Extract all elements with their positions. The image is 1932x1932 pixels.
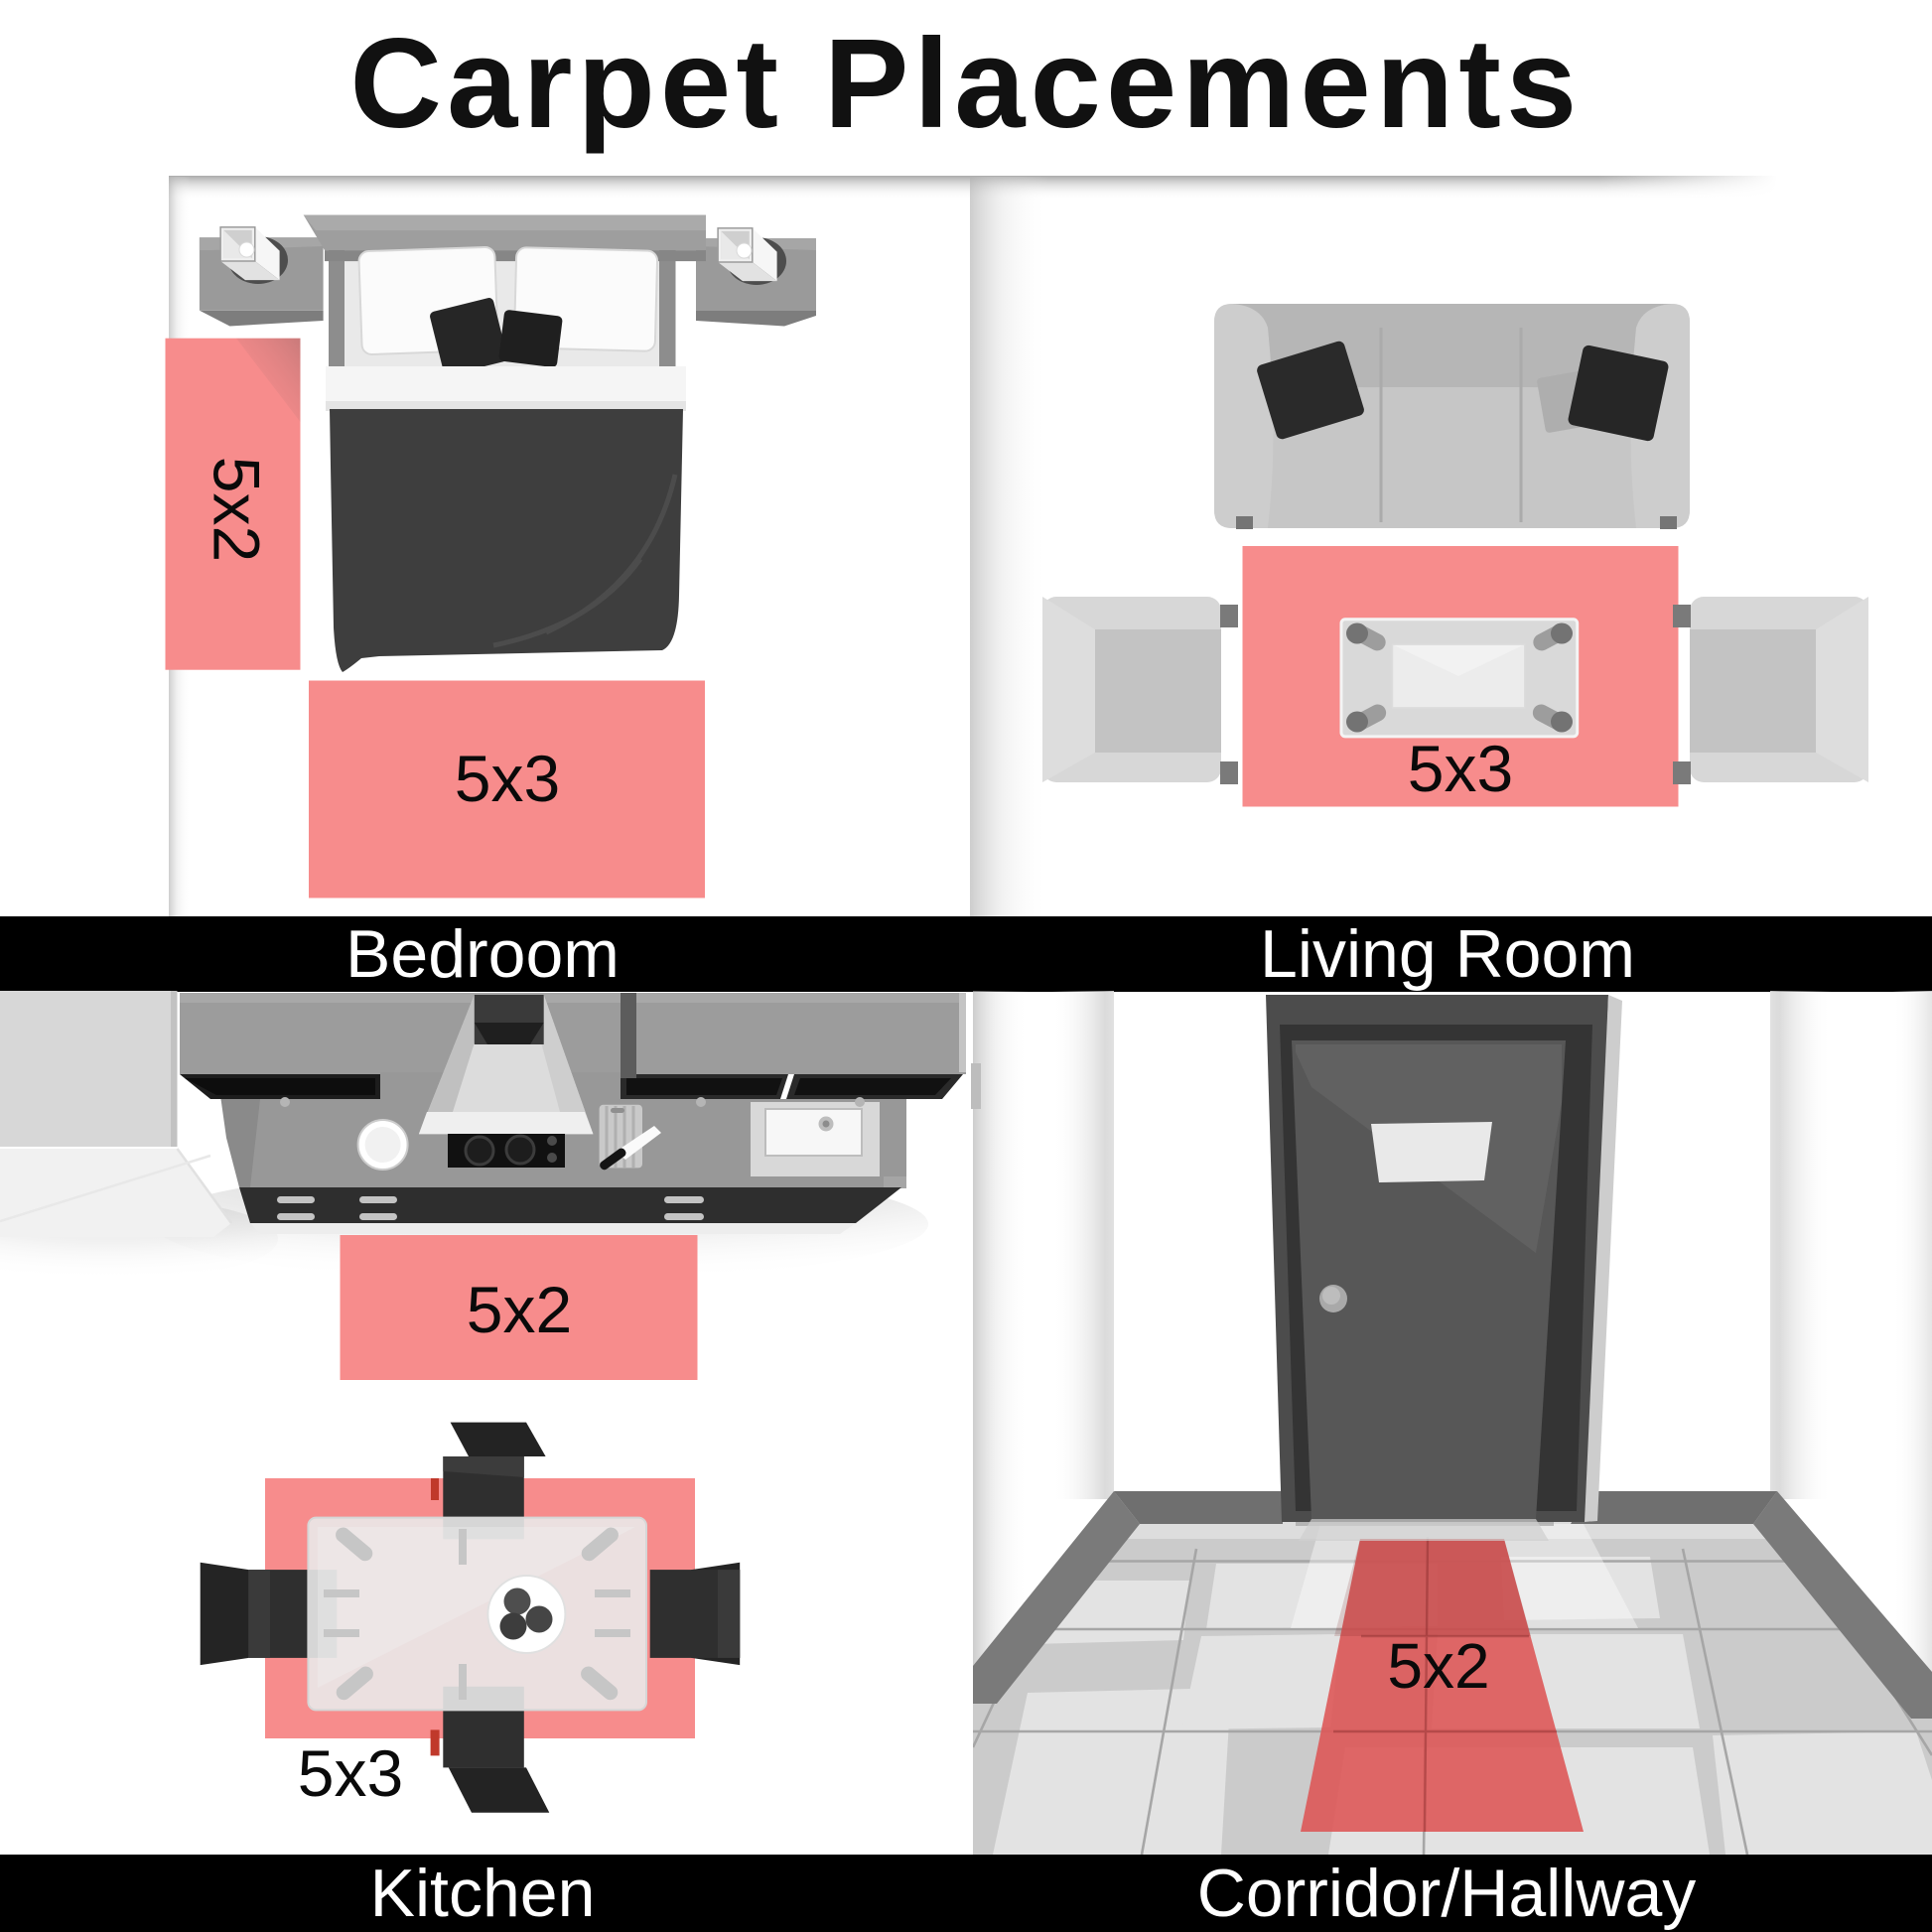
svg-text:Living Room: Living Room [1260,916,1635,992]
svg-text:5x3: 5x3 [1408,732,1513,805]
svg-text:5x2: 5x2 [201,457,274,562]
svg-text:Carpet Placements: Carpet Placements [350,13,1583,155]
svg-text:5x3: 5x3 [298,1736,403,1810]
svg-text:5x2: 5x2 [1387,1630,1489,1702]
svg-text:Kitchen: Kitchen [370,1856,596,1931]
svg-text:Corridor/Hallway: Corridor/Hallway [1197,1856,1697,1931]
svg-text:Bedroom: Bedroom [345,916,620,992]
svg-text:5x3: 5x3 [455,742,560,815]
svg-text:5x2: 5x2 [467,1273,572,1346]
